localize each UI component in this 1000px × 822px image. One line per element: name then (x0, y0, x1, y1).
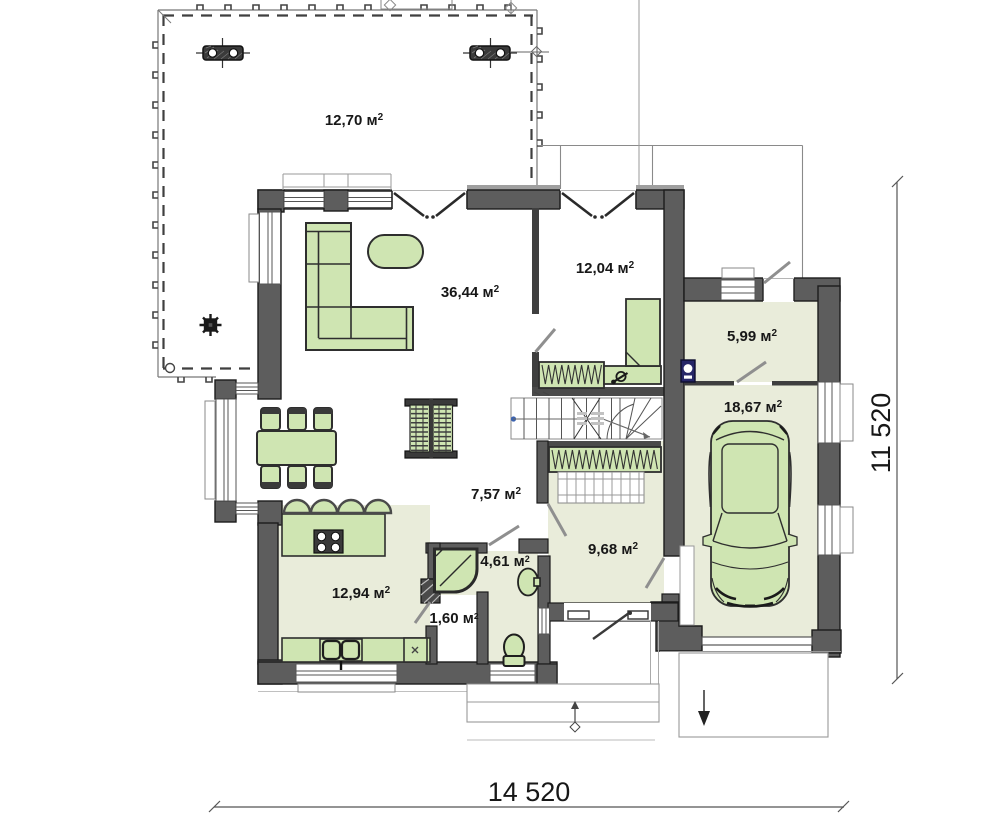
svg-text:14 520: 14 520 (488, 777, 571, 807)
svg-text:5,99 м2: 5,99 м2 (727, 328, 777, 345)
svg-text:9,68 м2: 9,68 м2 (588, 541, 638, 558)
svg-text:36,44 м2: 36,44 м2 (441, 284, 500, 301)
svg-text:18,67 м2: 18,67 м2 (724, 399, 783, 416)
svg-text:1,60 м2: 1,60 м2 (429, 610, 478, 627)
svg-text:7,57 м2: 7,57 м2 (471, 486, 521, 503)
svg-text:4,61 м2: 4,61 м2 (480, 553, 529, 570)
svg-text:12,94 м2: 12,94 м2 (332, 585, 391, 602)
svg-text:11 520: 11 520 (866, 393, 896, 474)
svg-text:12,04 м2: 12,04 м2 (576, 260, 635, 277)
svg-text:12,70 м2: 12,70 м2 (325, 112, 384, 129)
